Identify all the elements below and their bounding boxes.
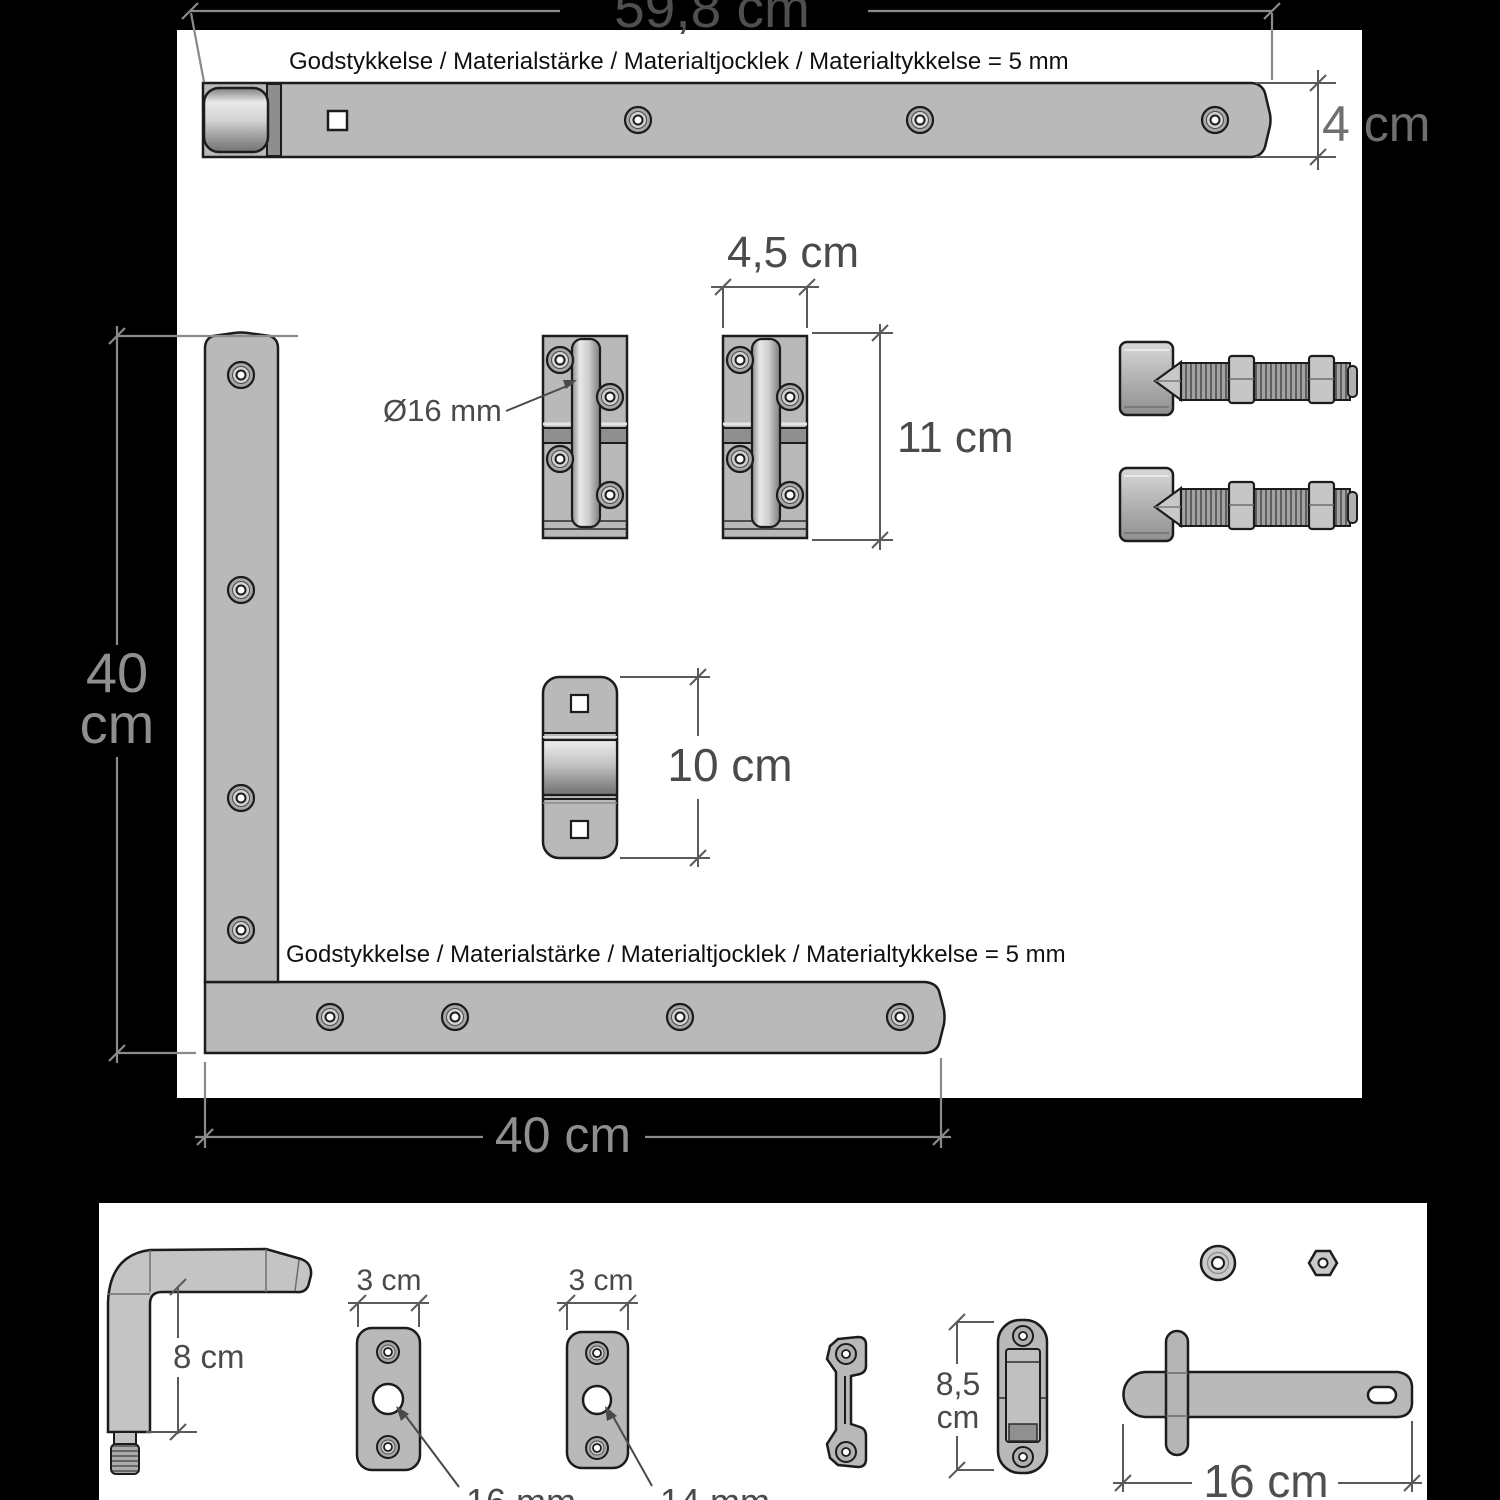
- bracket-height-label: 10 cm: [667, 739, 792, 791]
- material-note-corner: Godstykkelse / Materialstärke / Material…: [286, 941, 1066, 968]
- strap-square-hole: [328, 111, 347, 130]
- corner-vertical-label-line2: cm: [80, 692, 155, 755]
- corner-hinge-vertical-arm: [205, 333, 278, 983]
- plate16-hole-label: 16 mm: [466, 1481, 576, 1500]
- plate16-width-label: 3 cm: [356, 1264, 421, 1297]
- strap-screw-hole: [1202, 107, 1228, 133]
- plate-16mm: [357, 1328, 420, 1470]
- material-note-top: Godstykkelse / Materialstärke / Material…: [289, 48, 1069, 75]
- latch-keeper: [998, 1320, 1047, 1473]
- plate-14mm: [567, 1332, 628, 1468]
- strap-hinge-barrel: [204, 88, 268, 152]
- pin-thread: [111, 1444, 139, 1474]
- strap-screw-hole: [625, 107, 651, 133]
- hex-nut: [1309, 1251, 1337, 1275]
- drawing-canvas: 59,8 cm 4 cm Godstykkelse / Materialstär…: [0, 0, 1500, 1500]
- socket-height-label: 11 cm: [897, 413, 1014, 462]
- main-panel: [177, 30, 1362, 1098]
- gate-bracket: [543, 677, 617, 858]
- latch-keeper-height-line2: cm: [937, 1399, 980, 1435]
- strap-height-label: 4 cm: [1322, 96, 1430, 152]
- technical-drawing: 59,8 cm 4 cm Godstykkelse / Materialstär…: [0, 0, 1500, 1500]
- strap-screw-hole: [907, 107, 933, 133]
- socket-width-label: 4,5 cm: [727, 228, 859, 277]
- bracket-square-hole: [571, 821, 588, 838]
- socket-hinge-left: [543, 336, 627, 538]
- plate14-hole-label: 14 mm: [660, 1481, 770, 1500]
- latch-bar-slot: [1368, 1387, 1396, 1403]
- pin-height-label: 8 cm: [173, 1338, 245, 1375]
- strap-length-label: 59,8 cm: [614, 0, 810, 39]
- latch-bar-length-label: 16 cm: [1203, 1455, 1328, 1500]
- pin-neck: [114, 1432, 136, 1444]
- washer: [1201, 1246, 1235, 1280]
- socket-hinge-right: [723, 336, 807, 538]
- bracket-square-hole: [571, 695, 588, 712]
- latch-keeper-height-line1: 8,5: [936, 1366, 980, 1402]
- strap-hinge: [203, 83, 1271, 157]
- bracket-tube: [543, 740, 617, 795]
- latch-bar-handle: [1166, 1331, 1188, 1455]
- pin-diameter-text: Ø16 mm: [383, 393, 502, 428]
- plate14-width-label: 3 cm: [568, 1264, 633, 1297]
- corner-horizontal-label: 40 cm: [495, 1107, 631, 1163]
